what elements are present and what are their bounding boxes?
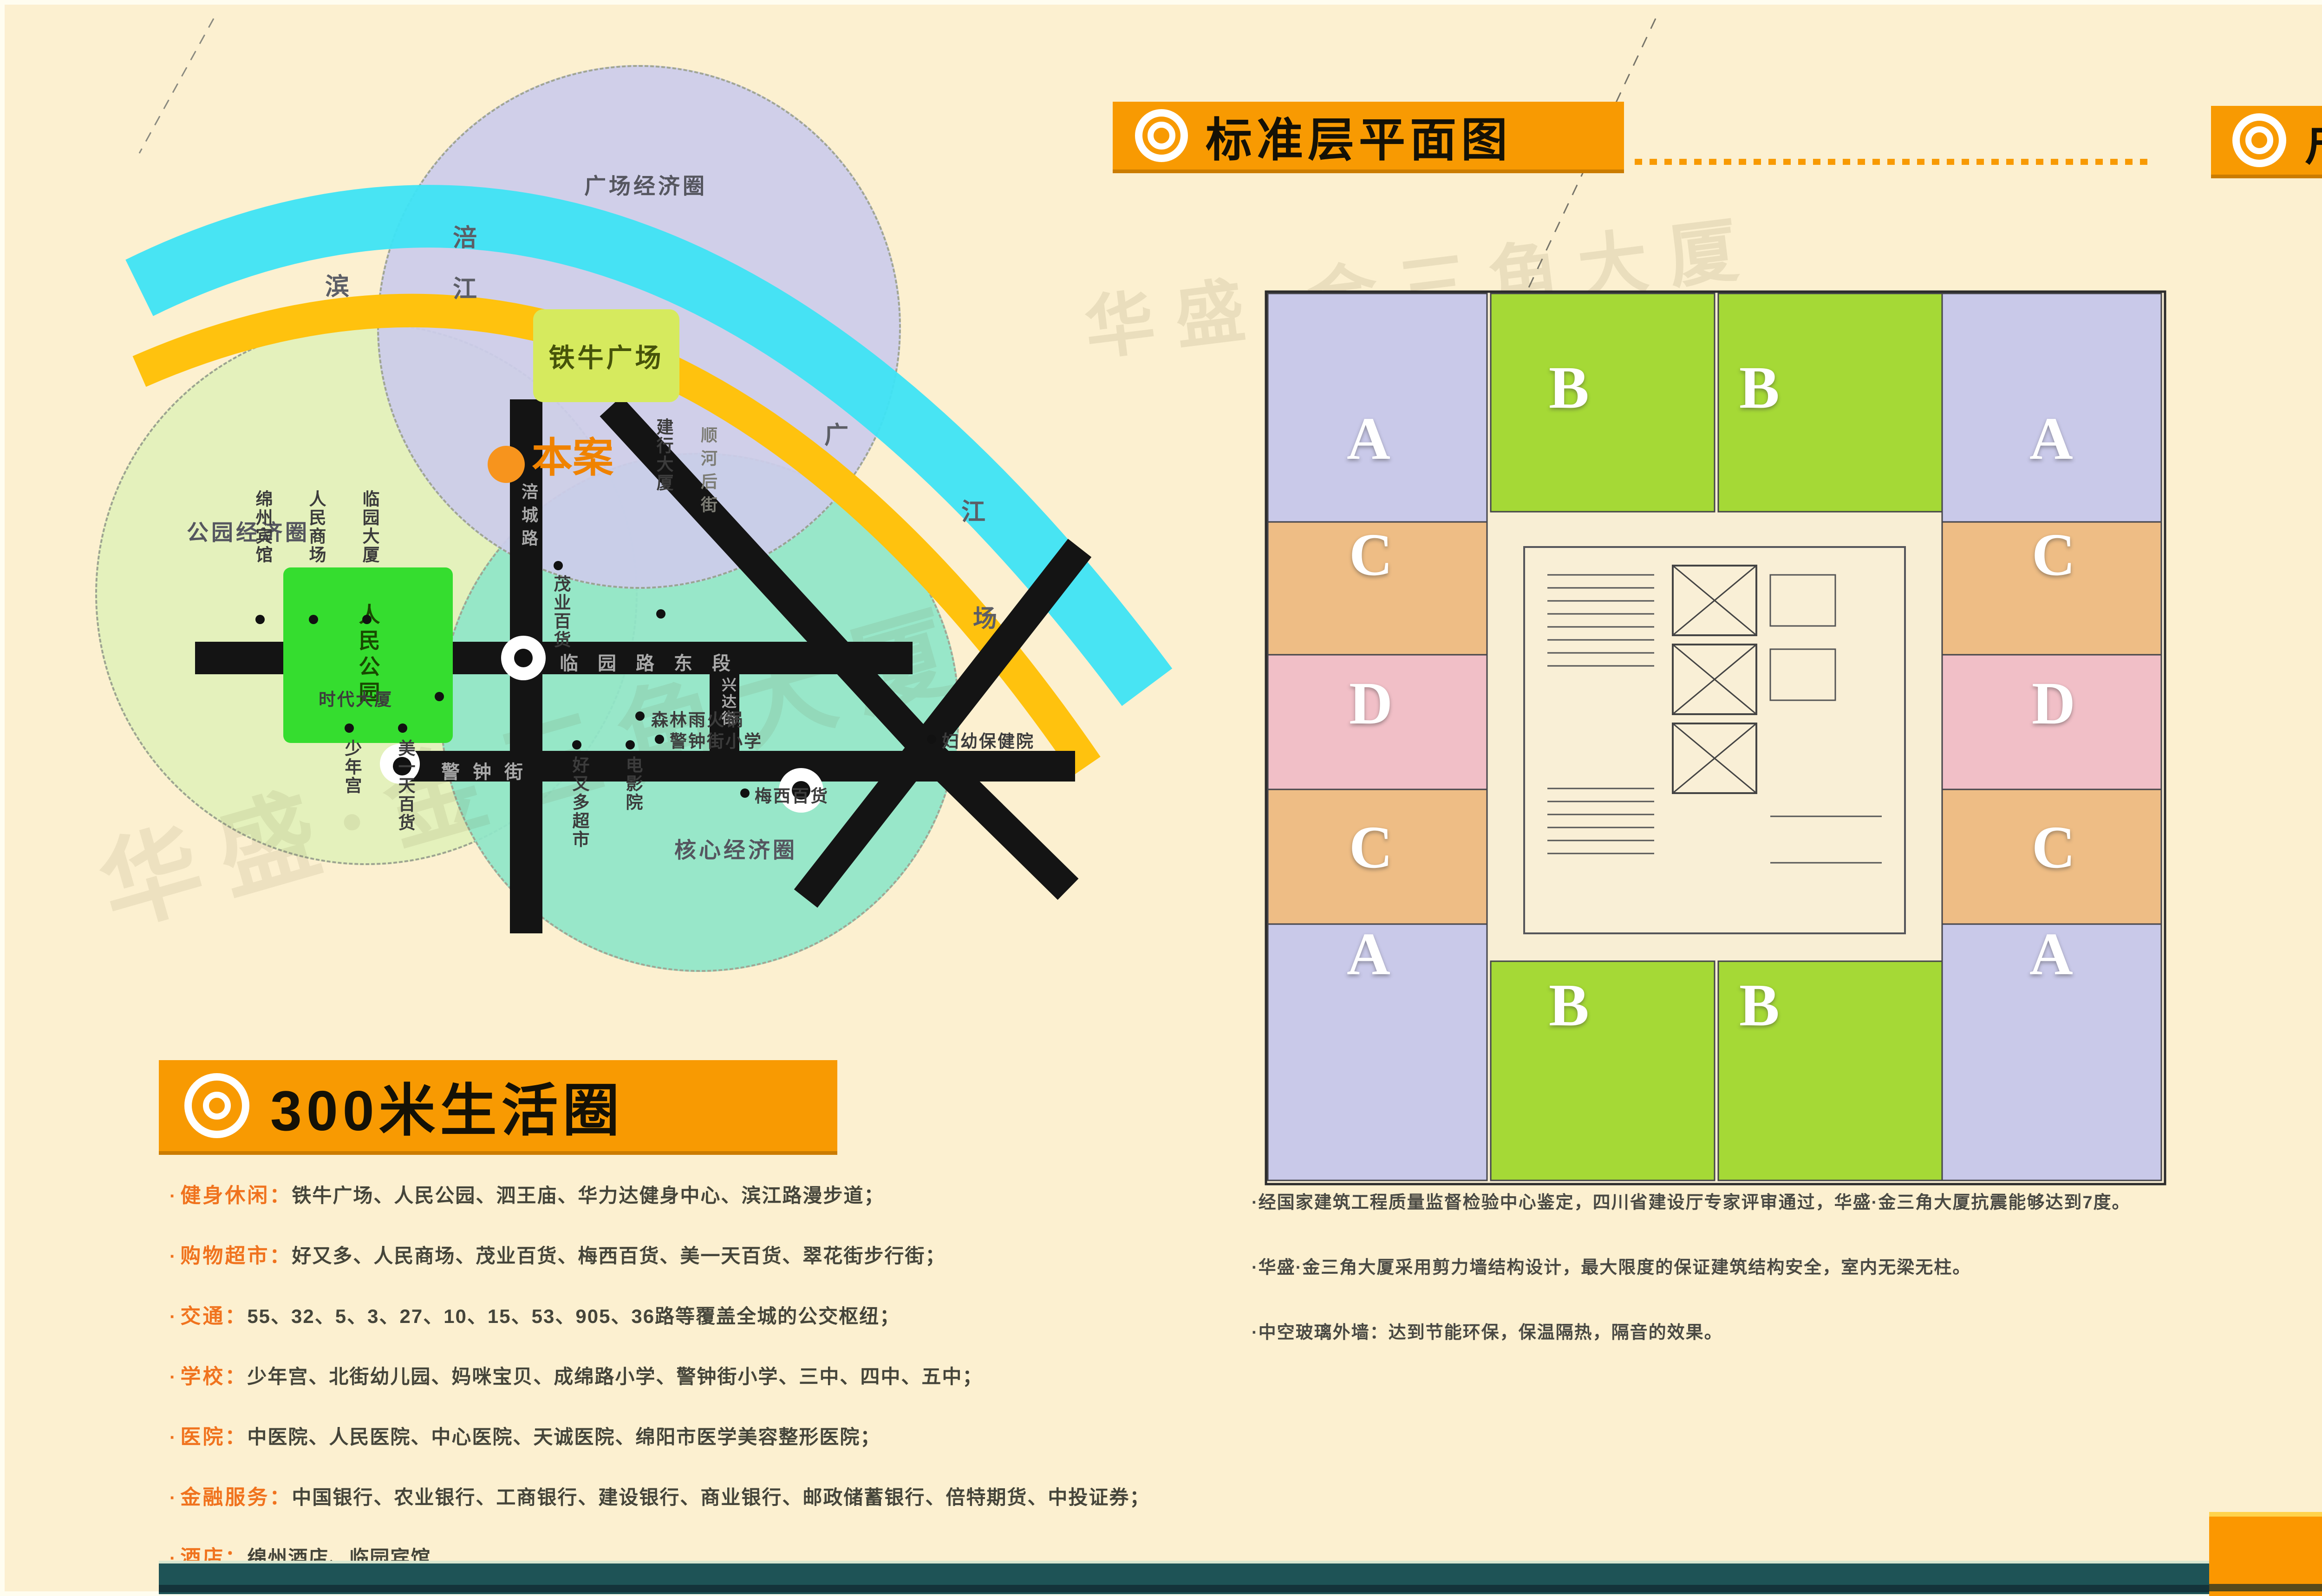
poi-label: 妇幼保健院 (942, 727, 1035, 752)
poi-dot (927, 735, 936, 744)
bottom-bar-orange-dark (2209, 1584, 2322, 1591)
band-char: 场 (973, 599, 997, 634)
floorplan-banner: 标准层平面图 (1113, 102, 1624, 173)
unit-letter-c: C (2032, 813, 2075, 882)
floorplan-note: ·经国家建筑工程质量监督检验中心鉴定，四川省建设厅专家评审通过，华盛·金三角大厦… (1252, 1170, 2250, 1235)
huxing-banner: 户型赏析 (2211, 106, 2322, 178)
site-label: 本案 (532, 425, 613, 484)
poi-dot (435, 692, 444, 701)
life-circle-list: ·健身休闲：铁牛广场、人民公园、泗王庙、华力达健身中心、滨江路漫步道； ·购物超… (170, 1166, 1238, 1588)
floorplan-note: ·华盛·金三角大厦采用剪力墙结构设计，最大限度的保证建筑结构安全，室内无梁无柱。 (1252, 1235, 2250, 1300)
dotted-divider (1635, 159, 2152, 165)
unit-letter-a: A (2029, 919, 2073, 989)
bullet-icon: · (170, 1186, 176, 1206)
bullet-icon: · (170, 1367, 176, 1388)
road-label-linyuan: 临园路东段 (560, 648, 750, 675)
unit-letter-c: C (1349, 813, 1393, 882)
poi-dot (626, 740, 635, 749)
poi-dot (554, 561, 563, 570)
poi-dot (572, 740, 581, 749)
category-label: 购物超市： (180, 1244, 292, 1267)
circle-label-core: 核心经济圈 (674, 832, 797, 864)
unit-letter-b: B (1739, 353, 1780, 423)
category-items: 好又多、人民商场、茂业百货、梅西百货、美一天百货、翠花街步行街； (292, 1245, 946, 1267)
poi-label: 时代大厦 (319, 685, 393, 710)
floorplan-note: ·中空玻璃外墙：达到节能环保，保温隔热，隔音的效果。 (1252, 1300, 2250, 1365)
category-label: 金融服务： (180, 1486, 292, 1509)
category-label: 医院： (180, 1426, 247, 1448)
road-band-char: 滨 (325, 267, 349, 302)
huxing-title: 户型赏析 (2305, 107, 2322, 173)
poi-dot (309, 615, 318, 624)
poi-dot (345, 723, 354, 733)
bullet-icon: · (170, 1246, 176, 1267)
poi-dot (255, 615, 265, 624)
life-circle-row: ·金融服务：中国银行、农业银行、工商银行、建设银行、商业银行、邮政储蓄银行、倍特… (170, 1467, 1238, 1528)
unit-letter-a: A (1347, 404, 1390, 474)
site-marker-icon (488, 446, 525, 483)
poi-label: 美一天百货 (392, 739, 417, 832)
poi-dot (635, 711, 645, 721)
circle-label-park: 公园经济圈 (187, 515, 310, 547)
life-circle-row: ·交通：55、32、5、3、27、10、15、53、905、36路等覆盖全城的公… (170, 1286, 1238, 1347)
band-char: 广 (824, 416, 848, 450)
unit-letter-b: B (1549, 971, 1589, 1040)
poi-label: 好又多超市 (567, 756, 592, 849)
river-char: 涪 (453, 218, 477, 253)
poi-label: 人民商场 (303, 490, 328, 564)
band-char: 江 (961, 492, 985, 527)
category-label: 学校： (180, 1365, 247, 1388)
poi-dot (656, 609, 665, 619)
floorplan-notes: ·经国家建筑工程质量监督检验中心鉴定，四川省建设厅专家评审通过，华盛·金三角大厦… (1252, 1170, 2250, 1365)
life-circle-row: ·健身休闲：铁牛广场、人民公园、泗王庙、华力达健身中心、滨江路漫步道； (170, 1166, 1238, 1226)
target-icon (184, 1073, 249, 1138)
poi-label: 警钟街小学 (670, 727, 763, 752)
life-circle-row: ·医院：中医院、人民医院、中心医院、天诚医院、绵阳市医学美容整形医院； (170, 1407, 1238, 1467)
category-items: 中医院、人民医院、中心医院、天诚医院、绵阳市医学美容整形医院； (247, 1426, 881, 1448)
target-icon (1135, 109, 1188, 162)
category-items: 中国银行、农业银行、工商银行、建设银行、商业银行、邮政储蓄银行、倍特期货、中投证… (292, 1486, 1150, 1508)
road-label-fucheng: 涪城路 (516, 483, 541, 553)
roundabout (501, 636, 546, 680)
category-label: 健身休闲： (180, 1184, 292, 1207)
life-circle-title: 300米生活圈 (270, 1065, 624, 1147)
unit-letter-a: A (2029, 404, 2073, 474)
bullet-icon: · (170, 1307, 176, 1327)
category-items: 55、32、5、3、27、10、15、53、905、36路等覆盖全城的公交枢纽； (247, 1305, 900, 1327)
poi-label: 梅西百货 (755, 782, 829, 807)
life-circle-banner: 300米生活圈 (159, 1060, 837, 1155)
poi-label: 绵州宾馆 (250, 490, 275, 564)
bullet-icon: · (170, 1488, 176, 1508)
unit-letter-c: C (1349, 520, 1393, 590)
bullet-icon: · (170, 1427, 176, 1448)
poi-label: 电影院 (620, 756, 645, 812)
road-label-jingzhong: 警钟街 (441, 757, 536, 784)
unit-letter-d: D (2032, 669, 2075, 738)
category-items: 铁牛广场、人民公园、泗王庙、华力达健身中心、滨江路漫步道； (292, 1185, 884, 1206)
category-items: 少年宫、北街幼儿园、妈咪宝贝、成绵路小学、警钟街小学、三中、四中、五中； (247, 1366, 983, 1388)
road-label-shunhe: 顺河后街 (696, 426, 720, 519)
bottom-bar-teal-dark (159, 1585, 2209, 1592)
unit-letter-a: A (1347, 919, 1390, 989)
poi-dot (398, 723, 407, 733)
tieniu-plaza-box: 铁牛广场 (533, 309, 679, 402)
category-label: 交通： (180, 1305, 247, 1328)
poi-label: 少年宫 (339, 739, 364, 795)
unit-letter-b: B (1549, 353, 1589, 423)
life-circle-row: ·学校：少年宫、北街幼儿园、妈咪宝贝、成绵路小学、警钟街小学、三中、四中、五中； (170, 1347, 1238, 1407)
people-park-box: 人民公园 (283, 567, 453, 743)
poi-label: 建行大厦 (651, 418, 676, 492)
target-icon (2232, 113, 2286, 167)
life-circle-row: ·购物超市：好又多、人民商场、茂业百货、梅西百货、美一天百货、翠花街步行街； (170, 1226, 1238, 1286)
river-char: 江 (453, 269, 477, 304)
unit-letter-b: B (1739, 971, 1780, 1040)
poi-dot (655, 735, 664, 744)
poi-dot (740, 788, 750, 798)
unit-letter-c: C (2032, 520, 2075, 590)
poi-label: 茂业百货 (548, 575, 573, 649)
poi-dot (362, 615, 372, 624)
unit-letter-d: D (1349, 669, 1393, 738)
bottom-bar-orange (2209, 1512, 2322, 1596)
floorplan-title: 标准层平面图 (1206, 102, 1512, 169)
circle-label-plaza: 广场经济圈 (584, 168, 707, 200)
poi-label: 临园大厦 (357, 490, 382, 564)
